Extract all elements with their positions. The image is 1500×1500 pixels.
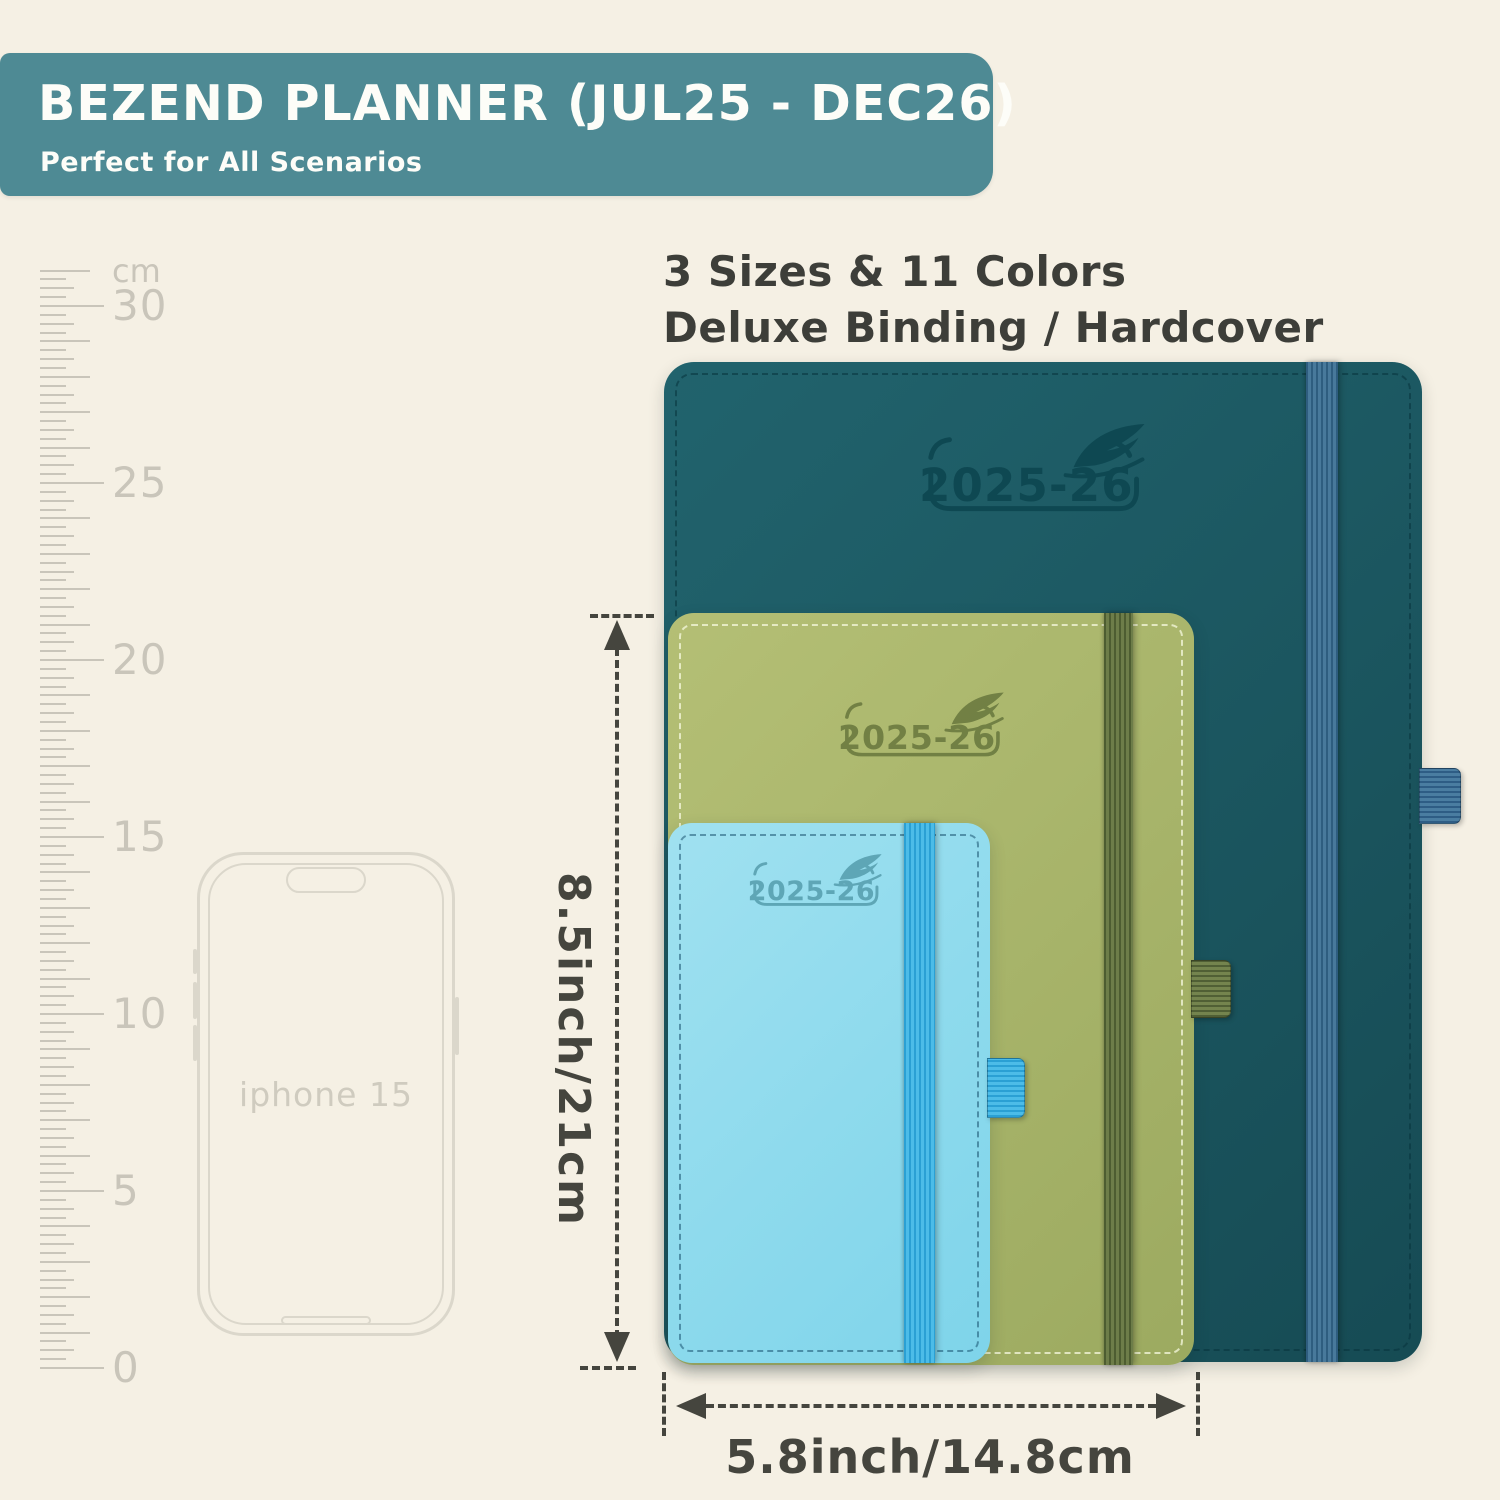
ruler-tick: [40, 429, 74, 431]
ruler-tick: [40, 287, 74, 289]
ruler-tick: [40, 1314, 74, 1316]
ruler-tick: [40, 1279, 74, 1281]
ruler-tick: [40, 1057, 66, 1059]
ruler-tick: [40, 323, 74, 325]
arrowhead-down-icon: [604, 1332, 630, 1362]
ruler-tick: [40, 916, 66, 918]
ruler-tick: [40, 951, 66, 953]
ruler-label-30: 30: [112, 285, 167, 327]
ruler-tick: [40, 854, 74, 856]
dim-line-vertical: [615, 648, 619, 1338]
ruler-tick: [40, 1119, 90, 1121]
cm-ruler: 302520151050cm: [0, 0, 200, 1500]
ruler-tick: [40, 332, 66, 334]
ruler-tick: [40, 1155, 90, 1157]
ruler-tick: [40, 1013, 104, 1015]
ruler-tick: [40, 933, 66, 935]
ruler-tick: [40, 305, 104, 307]
ruler-tick: [40, 1208, 74, 1210]
ruler-tick: [40, 385, 66, 387]
ruler-tick: [40, 615, 66, 617]
phone-volume-button: [193, 949, 197, 974]
ruler-label-25: 25: [112, 462, 167, 504]
ruler-tick: [40, 1093, 66, 1095]
dynamic-island: [286, 867, 366, 893]
phone-volume-button: [193, 1025, 197, 1061]
ruler-tick: [40, 1022, 66, 1024]
ruler-label-5: 5: [112, 1170, 140, 1212]
ruler-tick: [40, 942, 90, 944]
ruler-tick: [40, 765, 90, 767]
ruler-tick: [40, 1163, 66, 1165]
pen-loop: [1191, 960, 1231, 1018]
ruler-tick: [40, 898, 66, 900]
ruler-tick: [40, 296, 66, 298]
ruler-tick: [40, 349, 66, 351]
ruler-tick: [40, 1137, 74, 1139]
ruler-tick: [40, 340, 90, 342]
ruler-tick: [40, 739, 66, 741]
ruler-tick: [40, 1075, 66, 1077]
ruler-tick: [40, 597, 66, 599]
ruler-tick: [40, 818, 74, 820]
svg-text:2025-26: 2025-26: [748, 876, 875, 907]
ruler-tick: [40, 1243, 74, 1245]
ruler-tick: [40, 889, 74, 891]
ruler-tick: [40, 827, 66, 829]
ruler-tick: [40, 1287, 66, 1289]
ruler-tick: [40, 712, 74, 714]
ruler-tick: [40, 1102, 74, 1104]
emboss-logo: 2025-26: [836, 691, 1024, 766]
ruler-tick: [40, 1084, 90, 1086]
ruler-tick: [40, 730, 90, 732]
ruler-label-0: 0: [112, 1347, 140, 1389]
headline-binding: Deluxe Binding / Hardcover: [663, 300, 1324, 356]
ruler-tick: [40, 641, 74, 643]
ruler-tick: [40, 579, 66, 581]
ruler-tick: [40, 721, 66, 723]
ruler-tick: [40, 703, 66, 705]
ruler-tick: [40, 1172, 74, 1174]
svg-text:2025-26: 2025-26: [919, 459, 1134, 512]
dim-cap-top: [590, 614, 654, 618]
ruler-tick: [40, 588, 90, 590]
ruler-tick: [40, 571, 74, 573]
arrowhead-up-icon: [604, 620, 630, 650]
ruler-tick: [40, 1199, 66, 1201]
ruler-tick: [40, 482, 104, 484]
ruler-tick: [40, 1234, 66, 1236]
svg-text:2025-26: 2025-26: [838, 718, 996, 757]
width-dimension-label: 5.8inch/14.8cm: [690, 1430, 1170, 1484]
ruler-tick: [40, 606, 74, 608]
ruler-tick: [40, 358, 74, 360]
ruler-tick: [40, 1181, 66, 1183]
ruler-tick: [40, 491, 66, 493]
ruler-tick: [40, 1349, 74, 1351]
ruler-tick: [40, 535, 74, 537]
ruler-tick: [40, 694, 90, 696]
height-dimension-label: 8.5inch/21cm: [548, 872, 599, 1227]
ruler-tick: [40, 978, 90, 980]
ruler-tick: [40, 544, 66, 546]
ruler-tick: [40, 677, 74, 679]
ruler-tick: [40, 801, 90, 803]
ruler-tick: [40, 1217, 66, 1219]
ruler-tick: [40, 756, 66, 758]
dim-cap-right: [1196, 1372, 1200, 1436]
ruler-tick: [40, 1031, 74, 1033]
iphone-15-outline: iphone 15: [197, 852, 455, 1336]
ruler-tick: [40, 995, 74, 997]
pen-loop: [987, 1058, 1025, 1118]
ruler-label-20: 20: [112, 639, 167, 681]
ruler-tick: [40, 632, 66, 634]
ruler-tick: [40, 1004, 66, 1006]
ruler-tick: [40, 836, 104, 838]
ruler-tick: [40, 960, 74, 962]
ruler-unit-label: cm: [112, 255, 161, 287]
ruler-tick: [40, 394, 74, 396]
arrowhead-left-icon: [676, 1393, 706, 1419]
ruler-tick: [40, 455, 66, 457]
ruler-tick: [40, 314, 66, 316]
headline-sizes-colors: 3 Sizes & 11 Colors: [663, 244, 1324, 300]
ruler-tick: [40, 1225, 90, 1227]
ruler-tick: [40, 1128, 66, 1130]
ruler-tick: [40, 1261, 90, 1263]
ruler-tick: [40, 1040, 66, 1042]
ruler-tick: [40, 420, 66, 422]
ruler-tick: [40, 1340, 66, 1342]
ruler-label-10: 10: [112, 993, 167, 1035]
ruler-tick: [40, 562, 66, 564]
dim-line-horizontal: [706, 1404, 1156, 1408]
ruler-tick: [40, 473, 66, 475]
feature-headline: 3 Sizes & 11 Colors Deluxe Binding / Har…: [663, 244, 1324, 356]
pen-loop: [1419, 768, 1461, 824]
ruler-tick: [40, 438, 66, 440]
ruler-tick: [40, 1190, 104, 1192]
ruler-tick: [40, 526, 66, 528]
ruler-tick: [40, 668, 66, 670]
ruler-tick: [40, 1110, 66, 1112]
ruler-tick: [40, 553, 90, 555]
ruler-tick: [40, 809, 66, 811]
ruler-tick: [40, 464, 74, 466]
phone-bottom-bar: [281, 1316, 371, 1325]
ruler-tick: [40, 1270, 66, 1272]
ruler-tick: [40, 871, 90, 873]
ruler-tick: [40, 411, 90, 413]
ruler-tick: [40, 748, 74, 750]
phone-power-button: [455, 997, 459, 1055]
elastic-band: [904, 823, 935, 1363]
ruler-tick: [40, 278, 66, 280]
phone-volume-button: [193, 982, 197, 1019]
ruler-tick: [40, 402, 66, 404]
ruler-tick: [40, 774, 66, 776]
ruler-tick: [40, 1252, 66, 1254]
ruler-tick: [40, 863, 66, 865]
ruler-tick: [40, 1146, 66, 1148]
ruler-tick: [40, 500, 74, 502]
ruler-tick: [40, 1358, 66, 1360]
ruler-tick: [40, 1332, 90, 1334]
elastic-band: [1306, 362, 1338, 1362]
arrowhead-right-icon: [1156, 1393, 1186, 1419]
ruler-tick: [40, 907, 90, 909]
ruler-tick: [40, 1296, 90, 1298]
ruler-tick: [40, 650, 66, 652]
ruler-label-15: 15: [112, 816, 167, 858]
elastic-band: [1104, 613, 1133, 1365]
ruler-tick: [40, 783, 74, 785]
ruler-tick: [40, 376, 90, 378]
ruler-tick: [40, 969, 66, 971]
ruler-tick: [40, 880, 66, 882]
planner-small-blue: 2025-26: [668, 823, 990, 1363]
ruler-tick: [40, 1305, 66, 1307]
emboss-logo: 2025-26: [746, 853, 898, 914]
ruler-tick: [40, 624, 90, 626]
phone-label: iphone 15: [200, 1075, 452, 1114]
ruler-tick: [40, 367, 66, 369]
emboss-logo: 2025-26: [916, 422, 1172, 524]
ruler-tick: [40, 1048, 90, 1050]
ruler-tick: [40, 1323, 66, 1325]
ruler-tick: [40, 517, 90, 519]
ruler-tick: [40, 686, 66, 688]
ruler-tick: [40, 270, 90, 272]
ruler-tick: [40, 925, 74, 927]
ruler-tick: [40, 1367, 104, 1369]
ruler-tick: [40, 659, 104, 661]
ruler-tick: [40, 986, 66, 988]
ruler-tick: [40, 509, 66, 511]
dim-cap-left: [662, 1372, 666, 1436]
ruler-tick: [40, 792, 66, 794]
ruler-tick: [40, 1066, 74, 1068]
ruler-tick: [40, 845, 66, 847]
ruler-tick: [40, 447, 90, 449]
dim-cap-bottom: [580, 1366, 636, 1370]
